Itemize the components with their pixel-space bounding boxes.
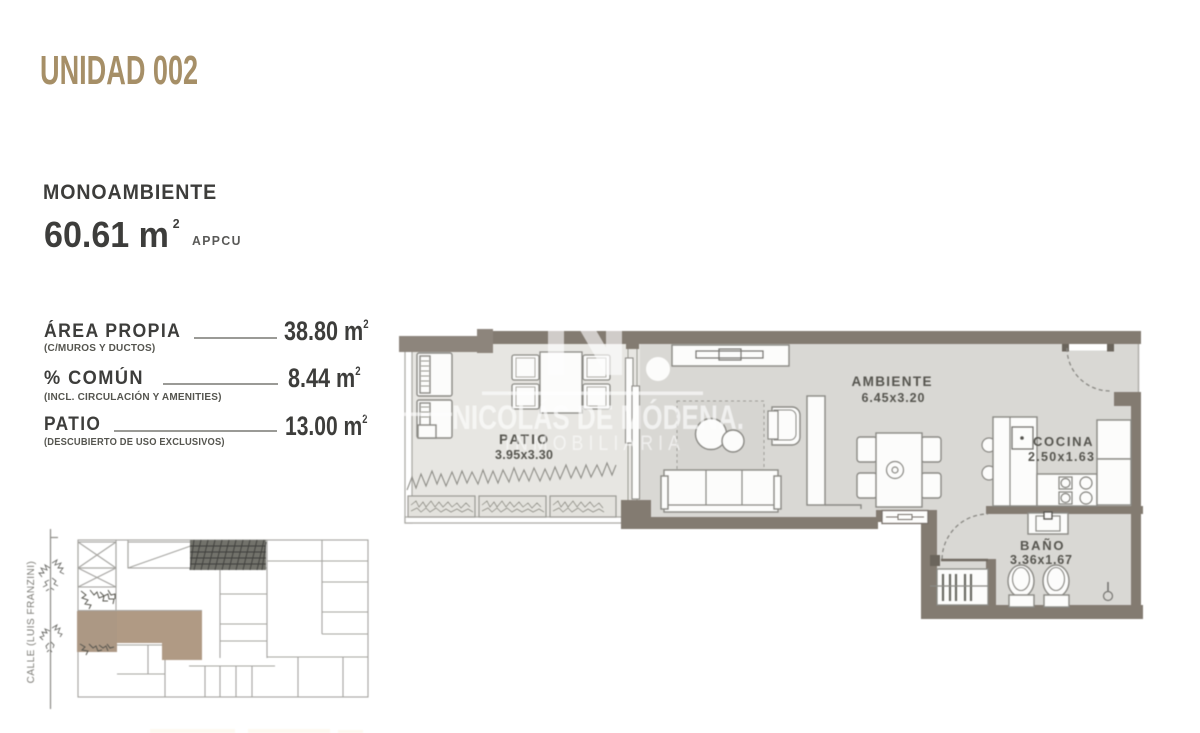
svg-text:COCINA: COCINA [1033,434,1093,449]
svg-text:6.45x3.20: 6.45x3.20 [862,391,925,405]
svg-text:2.50x1.63: 2.50x1.63 [1028,450,1094,464]
svg-text:3.36x1.67: 3.36x1.67 [1010,553,1072,567]
svg-text:BAÑO: BAÑO [1020,538,1064,553]
svg-text:INMOBILIARIA: INMOBILIARIA [505,432,685,455]
svg-text:CALLE (LUIS FRANZINI): CALLE (LUIS FRANZINI) [26,561,37,684]
svg-text:AMBIENTE: AMBIENTE [852,374,933,389]
